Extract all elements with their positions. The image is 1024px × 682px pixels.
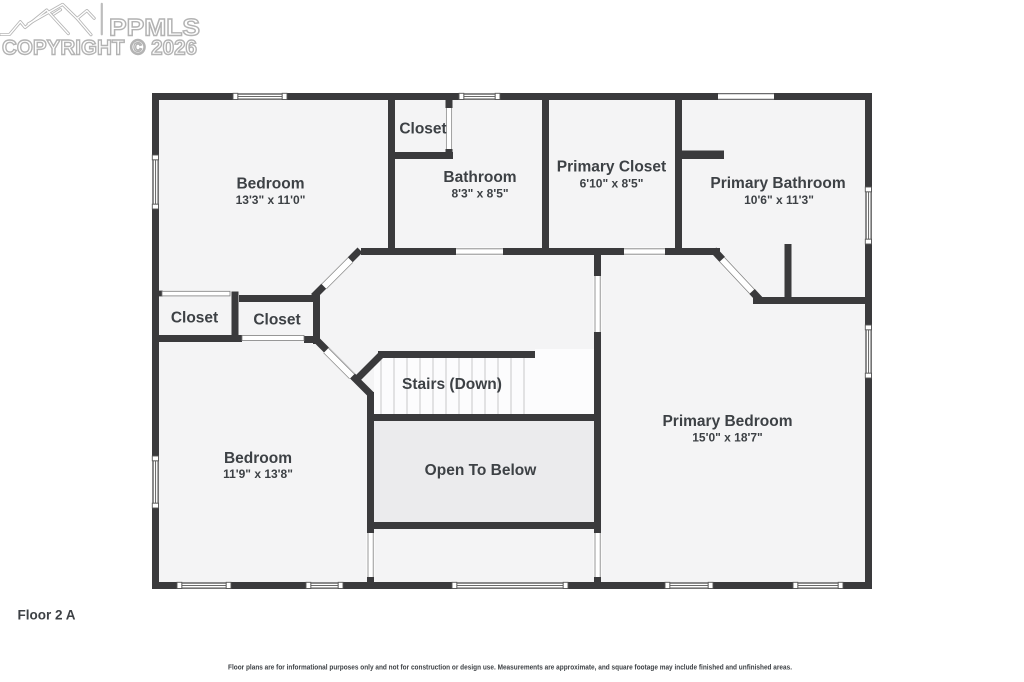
svg-text:15'0" x 18'7": 15'0" x 18'7" [692,431,762,445]
svg-text:Floor plans are for informatio: Floor plans are for informational purpos… [228,663,792,672]
svg-text:13'3" x 11'0": 13'3" x 11'0" [236,193,306,207]
svg-text:Primary Bathroom: Primary Bathroom [710,175,845,192]
svg-text:6'10" x 8'5": 6'10" x 8'5" [580,177,644,191]
svg-text:Closet: Closet [399,121,446,138]
svg-text:Bathroom: Bathroom [443,169,516,186]
svg-text:Bedroom: Bedroom [236,176,304,193]
svg-text:Bedroom: Bedroom [224,450,292,467]
svg-text:Floor 2 A: Floor 2 A [18,608,76,623]
svg-text:Stairs (Down): Stairs (Down) [402,376,502,393]
svg-text:COPYRIGHT © 2026: COPYRIGHT © 2026 [2,37,197,60]
svg-text:11'9" x 13'8": 11'9" x 13'8" [223,467,293,481]
svg-text:Open To Below: Open To Below [425,462,538,479]
svg-text:Closet: Closet [171,310,218,327]
svg-text:Primary Bedroom: Primary Bedroom [662,413,792,430]
svg-text:Closet: Closet [253,312,300,329]
svg-text:10'6" x 11'3": 10'6" x 11'3" [744,193,814,207]
svg-text:Primary Closet: Primary Closet [557,159,666,176]
svg-text:8'3" x 8'5": 8'3" x 8'5" [451,187,508,201]
